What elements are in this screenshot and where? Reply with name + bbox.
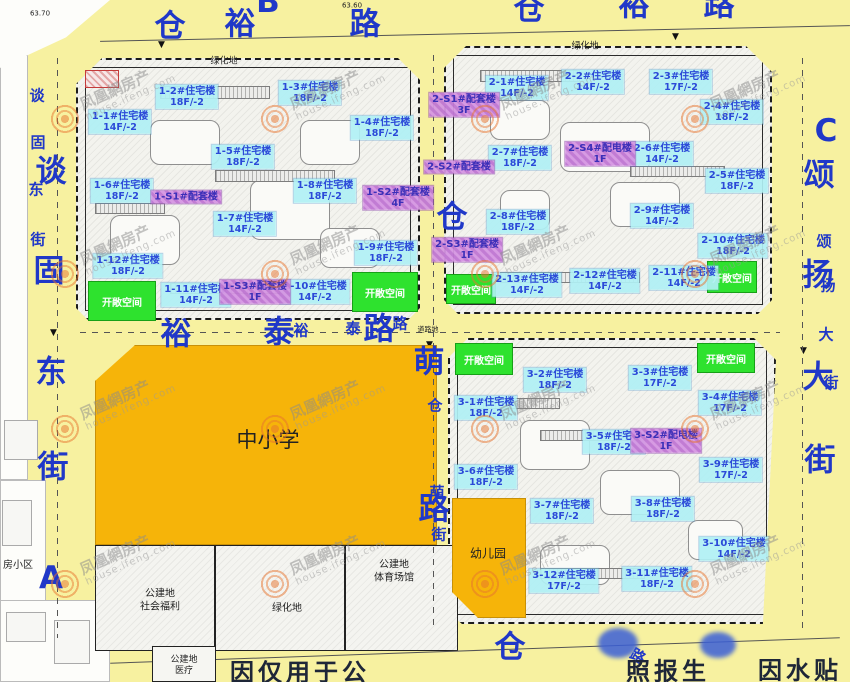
disclaimer-fragment: 因水贴 (758, 651, 842, 682)
building-name: 1-10#住宅楼 (283, 281, 346, 292)
building-name: 3-11#住宅楼 (625, 568, 688, 579)
road-name-char: 街 (30, 229, 45, 250)
building-name: 1-4#住宅楼 (354, 117, 410, 128)
building-name: 2-1#住宅楼 (489, 77, 545, 88)
building-label: 2-13#住宅楼 14F/-2 (492, 273, 561, 297)
building-floors: 18F/-2 (105, 191, 139, 202)
building-floors: 17F/-2 (547, 581, 581, 592)
building-name: 2-3#住宅楼 (653, 71, 709, 82)
building-name: 1-12#住宅楼 (96, 255, 159, 266)
building-label: 3-6#住宅楼 18F/-2 (455, 465, 517, 489)
building-floors: 14F/-2 (103, 122, 137, 133)
building-floors: 18F/-2 (170, 97, 204, 108)
road-name-char: 东 (36, 347, 67, 392)
building-name: 1-1#住宅楼 (92, 111, 148, 122)
road-name-char: A (39, 560, 63, 596)
road-name-char: 固 (34, 246, 65, 291)
road-name-char: 萌 (414, 337, 445, 382)
road-name-char: 颂 (816, 231, 831, 252)
building-name: 2-7#住宅楼 (492, 147, 548, 158)
building-name: 2-5#住宅楼 (709, 170, 765, 181)
building-label: 3-3#住宅楼 17F/-2 (629, 366, 691, 390)
building-floors: 18F/-2 (293, 93, 327, 104)
building-floors: 18F/-2 (545, 511, 579, 522)
building-floors: 4F (391, 198, 404, 209)
road-name-char: 路 (704, 0, 735, 25)
building-label: 3-4#住宅楼 17F/-2 (699, 391, 761, 415)
building-name: 2-9#住宅楼 (634, 205, 690, 216)
building-floors: 14F/-2 (717, 549, 751, 560)
building-floors: 14F/-2 (298, 292, 332, 303)
building-floors: 14F/-2 (645, 216, 679, 227)
open-space-label: 开敞空间 (102, 294, 142, 309)
building-floors: 18F/-2 (111, 266, 145, 277)
building-name: 2-S4#配电楼 (568, 143, 632, 154)
building-name: 1-5#住宅楼 (215, 146, 271, 157)
road-name-char: 泰 (264, 307, 295, 352)
land-label: 绿化地 (571, 41, 598, 52)
building-name: 3-8#住宅楼 (635, 498, 691, 509)
building-name: 2-6#住宅楼 (634, 143, 690, 154)
open-space: 开敞空间 (455, 343, 513, 375)
road-name-char: 裕 (619, 0, 650, 25)
road-name-char: 路 (364, 304, 395, 349)
road-name-char: 大 (818, 324, 833, 345)
road-name-char: 仓 (495, 622, 526, 667)
building-name: 1-S2#配套楼 (366, 187, 430, 198)
road-line-right (802, 58, 803, 628)
building-floors: 1F (659, 441, 672, 452)
building-name: 2-2#住宅楼 (565, 71, 621, 82)
residential-site-plan-map: ▼ ▼ ▼ ▼ ▼ 开敞空间 开敞空间 开敞空间 开敞空间 开敞空间 开敞空间 (0, 0, 850, 682)
road-name-char: 街 (38, 442, 69, 487)
building-label: 3-12#住宅楼 17F/-2 (529, 569, 598, 593)
building-name: 3-10#住宅楼 (702, 538, 765, 549)
building-floors: 17F/-2 (664, 82, 698, 93)
building-floors: 1F (248, 292, 261, 303)
building-floors: 14F/-2 (500, 88, 534, 99)
building-floors: 14F/-2 (667, 278, 701, 289)
building-floors: 14F/-2 (510, 285, 544, 296)
building-floors: 18F/-2 (640, 579, 674, 590)
building-floors: 18F/-2 (646, 509, 680, 520)
road-name-char: 东 (28, 179, 43, 200)
building-floors: 1F (593, 154, 606, 165)
building-label: 1-5#住宅楼 18F/-2 (212, 145, 274, 169)
building-floors: 14F/-2 (588, 281, 622, 292)
open-space-label: 开敞空间 (451, 282, 491, 297)
building-floors: 18F/-2 (597, 442, 631, 453)
building-label: 3-7#住宅楼 18F/-2 (531, 499, 593, 523)
building-floors: 18F/-2 (501, 222, 535, 233)
building-floors: 14F/-2 (576, 82, 610, 93)
building-floors: 18F/-2 (308, 191, 342, 202)
building-label: 1-3#住宅楼 18F/-2 (279, 81, 341, 105)
road-name-char: 固 (30, 132, 45, 153)
land-label: 幼儿园 (470, 547, 506, 562)
building-label: 2-8#住宅楼 18F/-2 (487, 210, 549, 234)
land-label: 绿化地 (210, 56, 237, 67)
building-name: 1-9#住宅楼 (358, 242, 414, 253)
building-label: 1-1#住宅楼 14F/-2 (89, 110, 151, 134)
road-name-char: 泰 (345, 318, 360, 339)
building-floors: 17F/-2 (643, 378, 677, 389)
building-name: 1-6#住宅楼 (94, 180, 150, 191)
building-label: 1-S2#配套楼 4F (363, 186, 433, 210)
road-name-char: 街 (823, 372, 838, 393)
road-name-char: 路 (392, 313, 407, 334)
building-floors: 18F/-2 (365, 128, 399, 139)
disclaimer-fragment: 照报生 (626, 652, 710, 682)
building-label: 2-S2#配套楼 (424, 161, 494, 174)
building-label: 3-8#住宅楼 18F/-2 (632, 497, 694, 521)
road-name-char: 扬 (820, 275, 835, 296)
building-name: 1-7#住宅楼 (217, 213, 273, 224)
land-label: 房小区 (3, 560, 33, 573)
building-floors: 14F/-2 (179, 295, 213, 306)
land-label: 公建地 社会福利 (140, 589, 180, 614)
road-name-char: 颂 (804, 150, 835, 195)
building-name: 2-S2#配套楼 (427, 162, 491, 173)
building-floors: 18F/-2 (716, 246, 750, 257)
land-label: 公建地 医疗 (170, 655, 197, 678)
building-label: 3-9#住宅楼 17F/-2 (700, 458, 762, 482)
building-floors: 3F (457, 105, 470, 116)
building-label: 1-2#住宅楼 18F/-2 (156, 85, 218, 109)
road-name-char: 仓 (155, 1, 186, 46)
building-label: 1-4#住宅楼 18F/-2 (351, 116, 413, 140)
building-name: 2-11#住宅楼 (652, 267, 715, 278)
building-name: 3-12#住宅楼 (532, 570, 595, 581)
building-name: 1-S3#配套楼 (223, 281, 287, 292)
open-space-label: 开敞空间 (464, 352, 504, 367)
building-label: 2-2#住宅楼 14F/-2 (562, 70, 624, 94)
road-name-char: 街 (805, 435, 836, 480)
open-space-label: 开敞空间 (706, 351, 746, 366)
building-label: 2-S3#配套楼 1F (432, 238, 502, 262)
land-label: 绿化地 (272, 603, 302, 616)
building-name: 2-S3#配套楼 (435, 239, 499, 250)
land-label: 公建地 体育场馆 (374, 560, 414, 585)
building-name: 3-4#住宅楼 (702, 392, 758, 403)
road-name-char: 街 (431, 524, 446, 545)
road-name-char: B (256, 0, 280, 20)
building-floors: 17F/-2 (713, 403, 747, 414)
building-name: 3-S2#配电楼 (634, 430, 698, 441)
building-floors: 18F/-2 (715, 112, 749, 123)
building-floors: 18F/-2 (226, 157, 260, 168)
road-name-char: 仓 (437, 192, 468, 237)
land-label: 63.70 (30, 10, 50, 19)
building-label: 1-12#住宅楼 18F/-2 (93, 254, 162, 278)
building-name: 2-12#住宅楼 (573, 270, 636, 281)
building-label: 2-S4#配电楼 1F (565, 142, 635, 166)
open-space: 开敞空间 (697, 343, 755, 373)
building-label: 2-5#住宅楼 18F/-2 (706, 169, 768, 193)
building-name: 3-3#住宅楼 (632, 367, 688, 378)
disclaimer-fragment: 因仅用于公 (230, 653, 370, 682)
building-name: 3-9#住宅楼 (703, 459, 759, 470)
building-name: 2-13#住宅楼 (495, 274, 558, 285)
road-name-char: 仓 (427, 395, 442, 416)
building-label: 1-8#住宅楼 18F/-2 (294, 179, 356, 203)
building-name: 1-3#住宅楼 (282, 82, 338, 93)
building-label: 2-12#住宅楼 14F/-2 (570, 269, 639, 293)
building-label: 2-3#住宅楼 17F/-2 (650, 70, 712, 94)
building-floors: 18F/-2 (469, 477, 503, 488)
building-label: 1-10#住宅楼 14F/-2 (280, 280, 349, 304)
building-label: 2-10#住宅楼 18F/-2 (698, 234, 767, 258)
building-label: 1-9#住宅楼 18F/-2 (355, 241, 417, 265)
road-name-char: 裕 (293, 320, 308, 341)
building-name: 2-8#住宅楼 (490, 211, 546, 222)
road-name-char: C (815, 113, 838, 149)
building-label: 3-2#住宅楼 18F/-2 (524, 368, 586, 392)
building-label: 1-7#住宅楼 14F/-2 (214, 212, 276, 236)
open-space: 开敞空间 (446, 274, 496, 304)
building-name: 1-2#住宅楼 (159, 86, 215, 97)
corner-white-top-left (0, 0, 110, 68)
building-floors: 17F/-2 (714, 470, 748, 481)
road-name-char: 萌 (429, 482, 444, 503)
building-label: 1-S1#配套楼 (151, 191, 221, 204)
land-label: 道路地 (418, 326, 439, 335)
building-floors: 14F/-2 (645, 154, 679, 165)
building-label: 2-6#住宅楼 14F/-2 (631, 142, 693, 166)
building-label: 3-11#住宅楼 18F/-2 (622, 567, 691, 591)
open-space-label: 开敞空间 (365, 285, 405, 300)
building-name: 3-6#住宅楼 (458, 466, 514, 477)
road-name-char: 谈 (29, 85, 44, 106)
road-name-char: 路 (350, 0, 381, 44)
land-label: 中小学 (237, 427, 300, 453)
road-line-top (100, 25, 850, 42)
building-label: 3-S2#配电楼 1F (631, 429, 701, 453)
building-name: 1-S1#配套楼 (154, 192, 218, 203)
building-name: 3-1#住宅楼 (458, 397, 514, 408)
building-floors: 18F/-2 (469, 408, 503, 419)
existing-district-left-upper (0, 55, 28, 480)
building-name: 2-S1#配套楼 (432, 94, 496, 105)
building-name: 1-11#住宅楼 (164, 284, 227, 295)
building-floors: 14F/-2 (228, 224, 262, 235)
building-label: 3-1#住宅楼 18F/-2 (455, 396, 517, 420)
building-floors: 18F/-2 (720, 181, 754, 192)
road-name-char: 裕 (161, 309, 192, 354)
building-name: 3-7#住宅楼 (534, 500, 590, 511)
building-name: 3-2#住宅楼 (527, 369, 583, 380)
building-label: 2-11#住宅楼 14F/-2 (649, 266, 718, 290)
building-label: 2-7#住宅楼 18F/-2 (489, 146, 551, 170)
building-label: 1-6#住宅楼 18F/-2 (91, 179, 153, 203)
building-name: 2-4#住宅楼 (704, 101, 760, 112)
building-name: 2-10#住宅楼 (701, 235, 764, 246)
building-label: 2-4#住宅楼 18F/-2 (701, 100, 763, 124)
building-label: 3-10#住宅楼 14F/-2 (699, 537, 768, 561)
building-floors: 1F (460, 250, 473, 261)
building-label: 2-9#住宅楼 14F/-2 (631, 204, 693, 228)
building-floors: 18F/-2 (369, 253, 403, 264)
building-floors: 18F/-2 (503, 158, 537, 169)
road-name-char: 裕 (225, 0, 256, 44)
road-name-char: 仓 (514, 0, 545, 29)
building-label: 2-S1#配套楼 3F (429, 93, 499, 117)
building-floors: 18F/-2 (538, 380, 572, 391)
building-name: 1-8#住宅楼 (297, 180, 353, 191)
open-space: 开敞空间 (88, 281, 156, 321)
building-label: 1-S3#配套楼 1F (220, 280, 290, 304)
